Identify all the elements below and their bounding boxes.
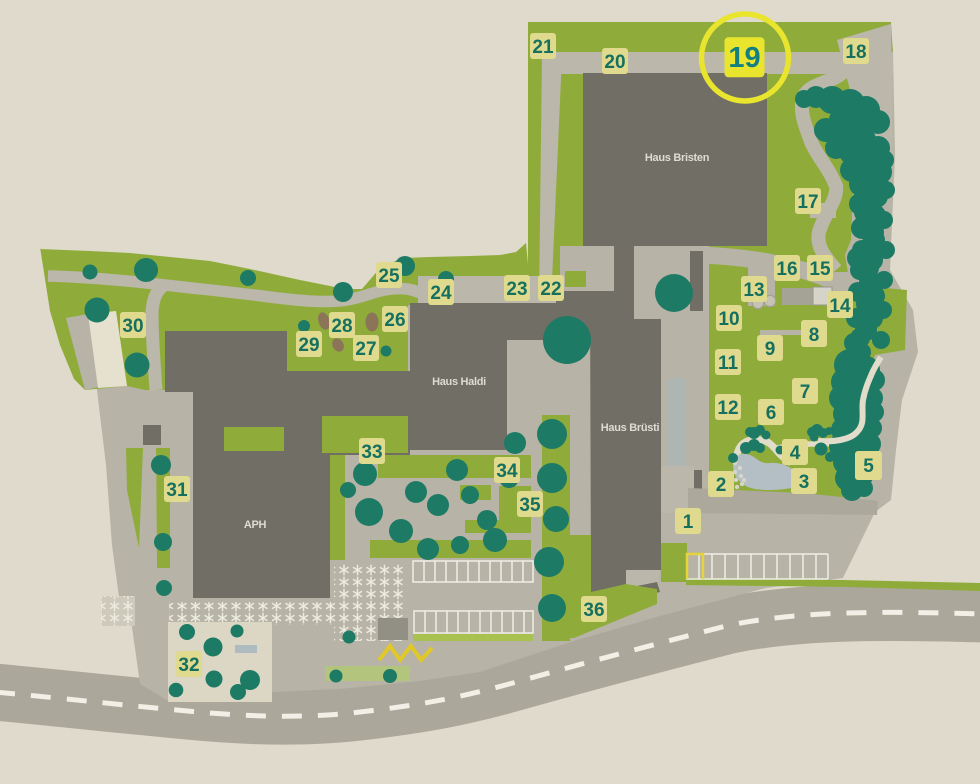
svg-text:22: 22 [540, 279, 561, 300]
svg-text:24: 24 [430, 283, 452, 304]
svg-text:17: 17 [797, 192, 818, 213]
svg-text:19: 19 [728, 42, 760, 74]
svg-text:35: 35 [519, 495, 541, 516]
svg-text:APH: APH [244, 519, 267, 531]
svg-text:27: 27 [355, 339, 376, 360]
svg-text:33: 33 [361, 442, 382, 463]
svg-text:10: 10 [718, 309, 739, 330]
svg-text:14: 14 [829, 296, 851, 317]
svg-text:11: 11 [718, 353, 739, 374]
svg-text:36: 36 [583, 600, 604, 621]
svg-text:Haus Bristen: Haus Bristen [645, 152, 710, 164]
svg-text:6: 6 [766, 403, 777, 424]
svg-text:30: 30 [122, 316, 143, 337]
svg-text:15: 15 [809, 259, 831, 280]
svg-text:31: 31 [166, 480, 188, 501]
svg-text:7: 7 [800, 382, 811, 403]
svg-text:12: 12 [717, 398, 738, 419]
svg-text:20: 20 [604, 52, 625, 73]
svg-text:16: 16 [776, 259, 797, 280]
svg-text:18: 18 [845, 42, 866, 63]
svg-text:4: 4 [790, 443, 801, 464]
svg-text:32: 32 [178, 655, 199, 676]
svg-text:23: 23 [506, 279, 527, 300]
svg-text:9: 9 [765, 339, 776, 360]
svg-text:13: 13 [743, 280, 764, 301]
svg-text:21: 21 [532, 37, 554, 58]
svg-text:1: 1 [683, 512, 694, 533]
svg-text:25: 25 [378, 266, 400, 287]
svg-text:Haus Haldi: Haus Haldi [432, 376, 486, 388]
svg-text:Haus Brüsti: Haus Brüsti [601, 422, 660, 434]
svg-text:5: 5 [863, 456, 874, 477]
svg-text:34: 34 [496, 461, 518, 482]
svg-text:8: 8 [809, 325, 820, 346]
svg-text:28: 28 [331, 316, 352, 337]
svg-text:26: 26 [384, 310, 405, 331]
svg-text:2: 2 [716, 475, 727, 496]
svg-text:3: 3 [799, 472, 810, 493]
svg-text:29: 29 [298, 335, 319, 356]
